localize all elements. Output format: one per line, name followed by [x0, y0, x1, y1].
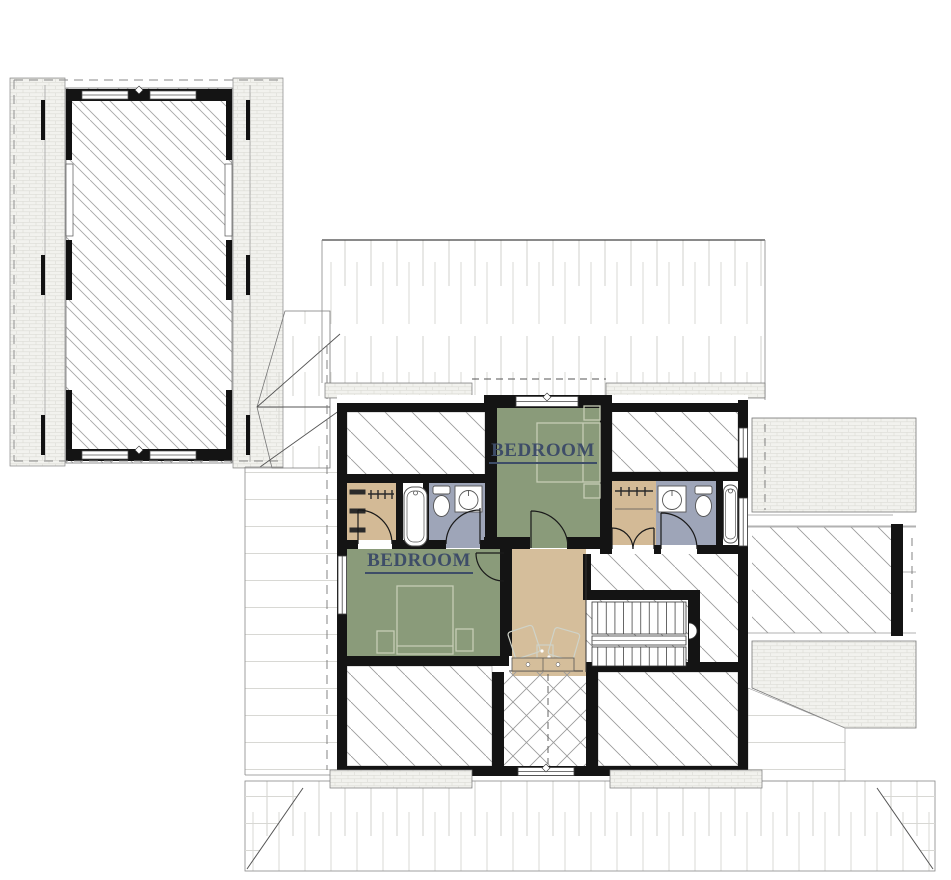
gutter-band-bottom-right	[610, 770, 762, 788]
wall-bay-left	[492, 672, 504, 776]
gutter-band-bottom-left	[330, 770, 472, 788]
tub-faucet-icon	[729, 489, 733, 493]
attic-space-bottom-right	[598, 672, 738, 766]
bedroom-top-floor	[495, 405, 600, 548]
wall-bedroom-top-left	[485, 395, 497, 549]
right-wing	[748, 418, 916, 781]
dormer-face	[472, 383, 606, 397]
right-roof-upper	[752, 418, 916, 512]
wall-tub-left	[396, 483, 403, 540]
toilet-icon	[696, 496, 712, 517]
wall-bay-right	[586, 672, 598, 776]
stair-treads-upper	[592, 602, 686, 634]
main-roof-top	[322, 240, 765, 400]
toilet-icon	[434, 496, 450, 517]
garage-room-hatch	[66, 88, 232, 463]
center-bay	[504, 672, 586, 766]
wall-tub-right	[716, 481, 723, 545]
open-corridor-hatch	[752, 527, 893, 633]
stair-treads-lower	[592, 647, 686, 666]
garage-roof-strip-left	[10, 78, 65, 466]
table-detail	[540, 649, 543, 652]
bedroom-left-label: BEDROOM	[365, 551, 473, 574]
bathtub-icon	[726, 489, 736, 539]
wall-outer-top-right	[605, 403, 748, 412]
bedroom-top-label: BEDROOM	[489, 441, 597, 464]
bathtub-icon	[407, 491, 424, 542]
wall-stair-top	[583, 590, 700, 600]
tub-faucet-icon	[414, 491, 418, 495]
wall-bathrow-left-top	[347, 474, 485, 483]
attic-space-top-left	[347, 412, 485, 478]
toilet-icon	[433, 486, 450, 494]
bottom-roof	[245, 781, 935, 871]
floor-plan-page: BEDROOM BEDROOM	[0, 0, 951, 880]
wall-bathrow-right-top	[605, 472, 748, 481]
staircase	[592, 602, 697, 666]
garage-block	[10, 78, 283, 468]
corridor-end-wall	[891, 524, 903, 636]
wall-bedroom-left-bottom	[337, 656, 509, 666]
toilet-icon	[695, 486, 712, 494]
attic-space-top-right	[612, 411, 738, 472]
wall-outer-top-left	[337, 403, 490, 412]
floor-plan-canvas	[0, 0, 951, 880]
attic-space-bottom-left	[347, 666, 492, 766]
